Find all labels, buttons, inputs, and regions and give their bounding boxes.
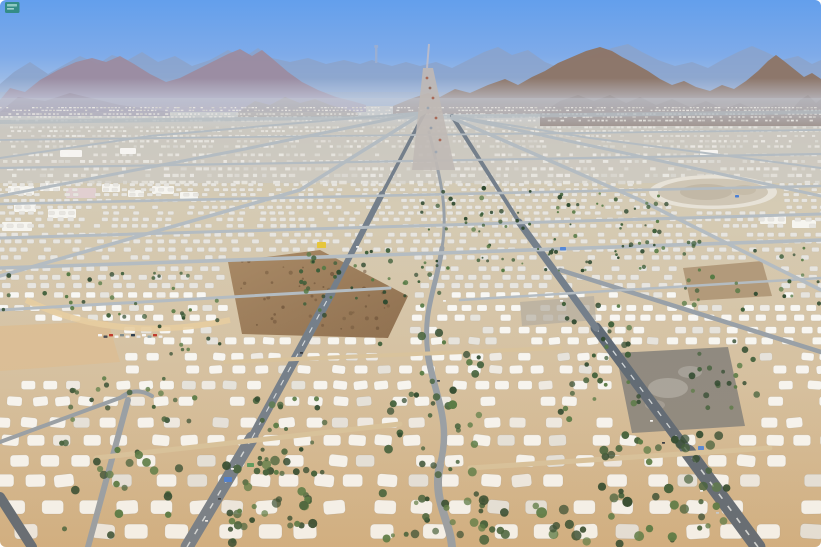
city-speck bbox=[685, 145, 688, 147]
city-speck bbox=[639, 107, 641, 108]
city-speck bbox=[359, 113, 361, 115]
tent bbox=[145, 247, 152, 251]
tent bbox=[197, 247, 204, 251]
city-speck bbox=[249, 160, 253, 163]
tent bbox=[517, 255, 525, 260]
tent bbox=[350, 183, 356, 186]
tent bbox=[9, 211, 15, 215]
city-speck bbox=[154, 116, 157, 118]
tent bbox=[455, 275, 464, 280]
tent bbox=[194, 275, 203, 280]
tree bbox=[403, 294, 406, 297]
city-speck bbox=[533, 120, 535, 122]
city-speck bbox=[451, 126, 454, 128]
city-speck bbox=[236, 110, 239, 111]
tent bbox=[366, 206, 372, 210]
tent bbox=[418, 183, 424, 186]
city-speck bbox=[140, 140, 145, 142]
city-speck bbox=[663, 174, 670, 177]
tent bbox=[768, 224, 775, 228]
tent bbox=[466, 206, 472, 210]
city-speck bbox=[777, 135, 781, 137]
tent bbox=[555, 255, 563, 260]
tent bbox=[25, 206, 31, 210]
city-speck bbox=[477, 145, 480, 147]
city-speck bbox=[152, 107, 154, 108]
city-speck bbox=[668, 167, 674, 170]
city-speck bbox=[104, 135, 109, 137]
tent bbox=[47, 206, 53, 210]
tent bbox=[68, 211, 74, 215]
tree bbox=[558, 195, 563, 200]
tent bbox=[103, 188, 109, 191]
city-speck bbox=[266, 154, 271, 157]
city-speck bbox=[651, 140, 654, 142]
tree bbox=[664, 202, 668, 206]
city-speck bbox=[549, 167, 553, 170]
city-speck bbox=[401, 130, 405, 132]
tent bbox=[609, 292, 618, 298]
city-speck bbox=[495, 154, 501, 157]
tent bbox=[104, 193, 110, 196]
city-speck bbox=[165, 113, 168, 115]
tree bbox=[622, 245, 625, 248]
city-speck bbox=[751, 116, 754, 118]
colored-structure bbox=[317, 242, 326, 248]
city-speck bbox=[257, 140, 260, 142]
tent bbox=[539, 283, 548, 288]
city-speck bbox=[255, 107, 257, 108]
city-speck bbox=[38, 130, 41, 132]
city-speck bbox=[586, 160, 591, 163]
tent bbox=[677, 239, 684, 243]
city-speck bbox=[71, 130, 74, 132]
tree bbox=[336, 270, 341, 275]
tent bbox=[426, 211, 432, 215]
tent bbox=[168, 247, 175, 251]
tent bbox=[797, 283, 806, 288]
city-speck bbox=[706, 135, 710, 137]
tent bbox=[149, 283, 158, 288]
tent bbox=[757, 233, 764, 237]
tent bbox=[64, 193, 70, 196]
city-speck bbox=[528, 140, 533, 142]
city-speck bbox=[624, 167, 628, 170]
city-speck bbox=[700, 135, 704, 137]
city-speck bbox=[7, 135, 11, 137]
tent bbox=[349, 218, 355, 222]
tent bbox=[622, 239, 629, 243]
city-speck bbox=[522, 140, 525, 142]
tent bbox=[278, 211, 284, 215]
city-speck bbox=[256, 113, 258, 115]
city-speck bbox=[306, 130, 310, 132]
tent bbox=[774, 247, 781, 251]
tent bbox=[457, 183, 463, 186]
city-speck bbox=[387, 126, 391, 128]
tree bbox=[322, 266, 326, 270]
city-speck bbox=[428, 181, 434, 185]
city-speck bbox=[597, 107, 600, 108]
tree bbox=[567, 203, 571, 207]
tent bbox=[86, 206, 92, 210]
city-speck bbox=[529, 145, 534, 147]
tent bbox=[749, 211, 755, 215]
city-speck bbox=[53, 126, 56, 128]
tent bbox=[130, 188, 136, 191]
city-speck bbox=[24, 145, 27, 147]
tent bbox=[212, 266, 220, 271]
tent bbox=[590, 206, 596, 210]
city-speck bbox=[272, 113, 275, 115]
tent bbox=[450, 218, 456, 222]
tent bbox=[15, 239, 22, 243]
city-speck bbox=[332, 126, 336, 128]
city-speck bbox=[602, 135, 605, 137]
traffic-speckle bbox=[429, 87, 432, 90]
city-speck bbox=[469, 110, 471, 111]
city-speck bbox=[252, 107, 255, 108]
city-speck bbox=[574, 110, 576, 111]
city-speck bbox=[788, 174, 795, 177]
city-speck bbox=[244, 167, 249, 170]
tent bbox=[175, 183, 181, 186]
city-speck bbox=[596, 135, 599, 137]
city-speck bbox=[682, 110, 684, 111]
tent bbox=[220, 206, 226, 210]
tent bbox=[147, 193, 153, 196]
tree bbox=[477, 259, 481, 263]
tent bbox=[768, 218, 774, 222]
city-speck bbox=[334, 113, 336, 115]
tree bbox=[490, 211, 493, 214]
tent bbox=[181, 255, 189, 260]
tent bbox=[521, 239, 528, 243]
city-speck bbox=[664, 126, 667, 128]
tree bbox=[504, 225, 507, 228]
tent bbox=[425, 239, 432, 243]
tree bbox=[329, 296, 332, 299]
rock-speckle bbox=[299, 285, 301, 287]
city-speck bbox=[700, 160, 706, 163]
city-speck bbox=[227, 174, 233, 177]
city-speck bbox=[251, 154, 255, 157]
city-speck bbox=[702, 120, 705, 122]
city-speck bbox=[220, 113, 223, 115]
tent bbox=[388, 211, 394, 215]
city-speck bbox=[80, 107, 82, 108]
tent bbox=[581, 239, 588, 243]
city-speck bbox=[489, 110, 492, 111]
tree bbox=[478, 230, 480, 232]
tent bbox=[423, 206, 429, 210]
tent bbox=[582, 193, 588, 196]
tree bbox=[307, 252, 312, 257]
tent bbox=[97, 239, 104, 243]
city-speck bbox=[211, 113, 213, 115]
city-speck bbox=[351, 174, 357, 177]
tent bbox=[193, 193, 199, 196]
tent bbox=[544, 193, 550, 196]
tent bbox=[139, 183, 145, 186]
city-speck bbox=[511, 110, 514, 111]
city-speck bbox=[80, 160, 85, 163]
tree bbox=[735, 282, 738, 285]
tent bbox=[447, 239, 454, 243]
city-speck bbox=[540, 167, 545, 170]
city-speck bbox=[360, 110, 362, 111]
tent bbox=[5, 188, 11, 191]
city-speck bbox=[675, 120, 677, 122]
city-speck bbox=[351, 113, 353, 115]
city-speck bbox=[47, 107, 49, 108]
tent bbox=[156, 292, 165, 298]
city-speck bbox=[669, 120, 673, 122]
city-speck bbox=[262, 174, 266, 177]
tent bbox=[133, 239, 140, 243]
city-speck bbox=[330, 145, 333, 147]
city-speck bbox=[260, 113, 263, 115]
city-speck bbox=[678, 160, 684, 163]
city-speck bbox=[120, 113, 123, 115]
tree bbox=[152, 276, 156, 280]
city-speck bbox=[475, 135, 478, 137]
city-speck bbox=[155, 107, 157, 108]
tent bbox=[627, 224, 634, 228]
tree bbox=[441, 190, 445, 194]
city-speck bbox=[250, 140, 254, 142]
city-speck bbox=[108, 113, 111, 115]
city-speck bbox=[521, 154, 526, 157]
city-speck bbox=[253, 167, 257, 170]
city-speck bbox=[12, 174, 17, 177]
tent bbox=[560, 199, 566, 202]
city-speck bbox=[603, 160, 608, 163]
tent bbox=[785, 247, 792, 251]
city-speck bbox=[104, 107, 107, 108]
tent bbox=[465, 183, 471, 186]
tent bbox=[2, 283, 11, 288]
tent bbox=[212, 206, 218, 210]
tent bbox=[577, 233, 584, 237]
city-speck bbox=[92, 107, 95, 108]
city-speck bbox=[186, 113, 188, 115]
city-speck bbox=[737, 110, 739, 111]
city-speck bbox=[159, 107, 162, 108]
city-speck bbox=[512, 107, 514, 108]
tent bbox=[471, 233, 478, 237]
city-speck bbox=[796, 107, 799, 108]
tent bbox=[67, 206, 73, 210]
city-speck bbox=[810, 120, 813, 122]
city-speck bbox=[145, 113, 147, 115]
tent bbox=[184, 183, 190, 186]
city-speck bbox=[730, 167, 735, 170]
city-speck bbox=[519, 107, 522, 108]
tent bbox=[460, 233, 467, 237]
city-speck bbox=[533, 140, 537, 142]
city-speck bbox=[347, 154, 352, 157]
tent bbox=[420, 283, 429, 288]
city-speck bbox=[23, 130, 26, 132]
city-speck bbox=[444, 120, 448, 122]
tree bbox=[448, 197, 452, 201]
tent bbox=[355, 188, 361, 191]
city-speck bbox=[354, 140, 357, 142]
city-speck bbox=[159, 154, 163, 157]
city-speck bbox=[451, 174, 457, 177]
tent bbox=[157, 211, 163, 215]
city-speck bbox=[248, 107, 251, 108]
city-speck bbox=[157, 113, 159, 115]
tree bbox=[695, 288, 700, 293]
tent bbox=[592, 183, 598, 186]
tent bbox=[68, 218, 74, 222]
city-speck bbox=[100, 126, 103, 128]
city-speck bbox=[780, 145, 783, 147]
tree bbox=[316, 269, 320, 273]
city-speck bbox=[171, 116, 174, 118]
tent bbox=[164, 183, 170, 186]
city-speck bbox=[497, 167, 501, 170]
tent bbox=[795, 218, 801, 222]
tent bbox=[758, 218, 764, 222]
city-speck bbox=[372, 110, 375, 111]
city-speck bbox=[720, 167, 726, 170]
city-speck bbox=[115, 154, 119, 157]
city-speck bbox=[531, 174, 538, 177]
tent bbox=[143, 218, 149, 222]
tree bbox=[312, 260, 315, 263]
city-speck bbox=[449, 107, 452, 108]
city-speck bbox=[643, 120, 646, 122]
tent bbox=[414, 255, 422, 260]
tent bbox=[7, 206, 13, 210]
tree bbox=[793, 253, 796, 256]
tent bbox=[203, 206, 209, 210]
city-speck bbox=[474, 181, 481, 185]
city-speck bbox=[613, 110, 615, 111]
city-speck bbox=[648, 120, 652, 122]
tent bbox=[257, 188, 263, 191]
tent bbox=[617, 275, 626, 280]
city-speck bbox=[354, 120, 356, 122]
city-speck bbox=[575, 107, 577, 108]
city-speck bbox=[728, 107, 730, 108]
city-speck bbox=[611, 107, 613, 108]
tent bbox=[100, 292, 109, 298]
tent bbox=[815, 218, 821, 222]
city-speck bbox=[460, 174, 466, 177]
tent bbox=[488, 239, 495, 243]
city-speck bbox=[764, 107, 767, 108]
city-speck bbox=[729, 116, 731, 118]
tent bbox=[809, 224, 816, 228]
city-speck bbox=[681, 135, 685, 137]
tent bbox=[0, 224, 3, 228]
city-speck bbox=[315, 154, 320, 157]
tent bbox=[35, 206, 41, 210]
tent bbox=[269, 247, 276, 251]
tent bbox=[256, 247, 263, 251]
city-speck bbox=[664, 140, 668, 142]
city-speck bbox=[458, 110, 460, 111]
tree bbox=[554, 250, 558, 254]
tent bbox=[751, 224, 758, 228]
city-speck bbox=[353, 110, 355, 111]
city-speck bbox=[470, 135, 474, 137]
tent bbox=[113, 193, 119, 196]
city-speck bbox=[524, 110, 526, 111]
tree bbox=[306, 286, 310, 290]
city-speck bbox=[199, 126, 203, 128]
city-speck bbox=[496, 145, 499, 147]
tent bbox=[452, 292, 461, 298]
tent bbox=[430, 218, 436, 222]
tent bbox=[421, 247, 428, 251]
tent bbox=[57, 206, 63, 210]
city-speck bbox=[679, 120, 681, 122]
tent bbox=[158, 247, 165, 251]
city-speck bbox=[611, 126, 614, 128]
city-speck bbox=[771, 116, 773, 118]
tent bbox=[811, 206, 817, 210]
city-speck bbox=[101, 145, 106, 147]
tent bbox=[19, 211, 25, 215]
city-speck bbox=[42, 126, 44, 128]
tree bbox=[482, 257, 484, 259]
city-speck bbox=[476, 107, 479, 108]
tent bbox=[181, 239, 188, 243]
tree bbox=[350, 286, 353, 289]
city-speck bbox=[357, 145, 361, 147]
tent bbox=[701, 255, 709, 260]
tree bbox=[355, 297, 358, 300]
city-speck bbox=[80, 126, 83, 128]
tent bbox=[510, 283, 519, 288]
city-speck bbox=[54, 130, 58, 132]
city-speck bbox=[761, 107, 764, 108]
city-speck bbox=[146, 140, 149, 142]
tent bbox=[146, 239, 153, 243]
tent bbox=[208, 247, 215, 251]
city-speck bbox=[583, 167, 587, 170]
city-speck bbox=[796, 174, 802, 177]
tent bbox=[101, 206, 107, 210]
city-speck bbox=[47, 135, 51, 137]
tree bbox=[370, 250, 373, 253]
city-speck bbox=[194, 113, 196, 115]
city-speck bbox=[632, 116, 635, 118]
tent bbox=[366, 233, 373, 237]
city-speck bbox=[815, 140, 818, 142]
tent bbox=[509, 199, 515, 202]
tree bbox=[710, 275, 715, 280]
tent bbox=[121, 193, 127, 196]
city-speck bbox=[192, 110, 194, 111]
city-speck bbox=[243, 174, 248, 177]
city-speck bbox=[113, 113, 115, 115]
city-speck bbox=[49, 110, 52, 111]
city-speck bbox=[396, 110, 399, 111]
tent bbox=[53, 239, 60, 243]
tent bbox=[79, 218, 85, 222]
tent bbox=[308, 193, 314, 196]
city-speck bbox=[360, 107, 362, 108]
city-speck bbox=[362, 174, 368, 177]
tent bbox=[707, 211, 713, 215]
city-speck bbox=[151, 110, 154, 111]
